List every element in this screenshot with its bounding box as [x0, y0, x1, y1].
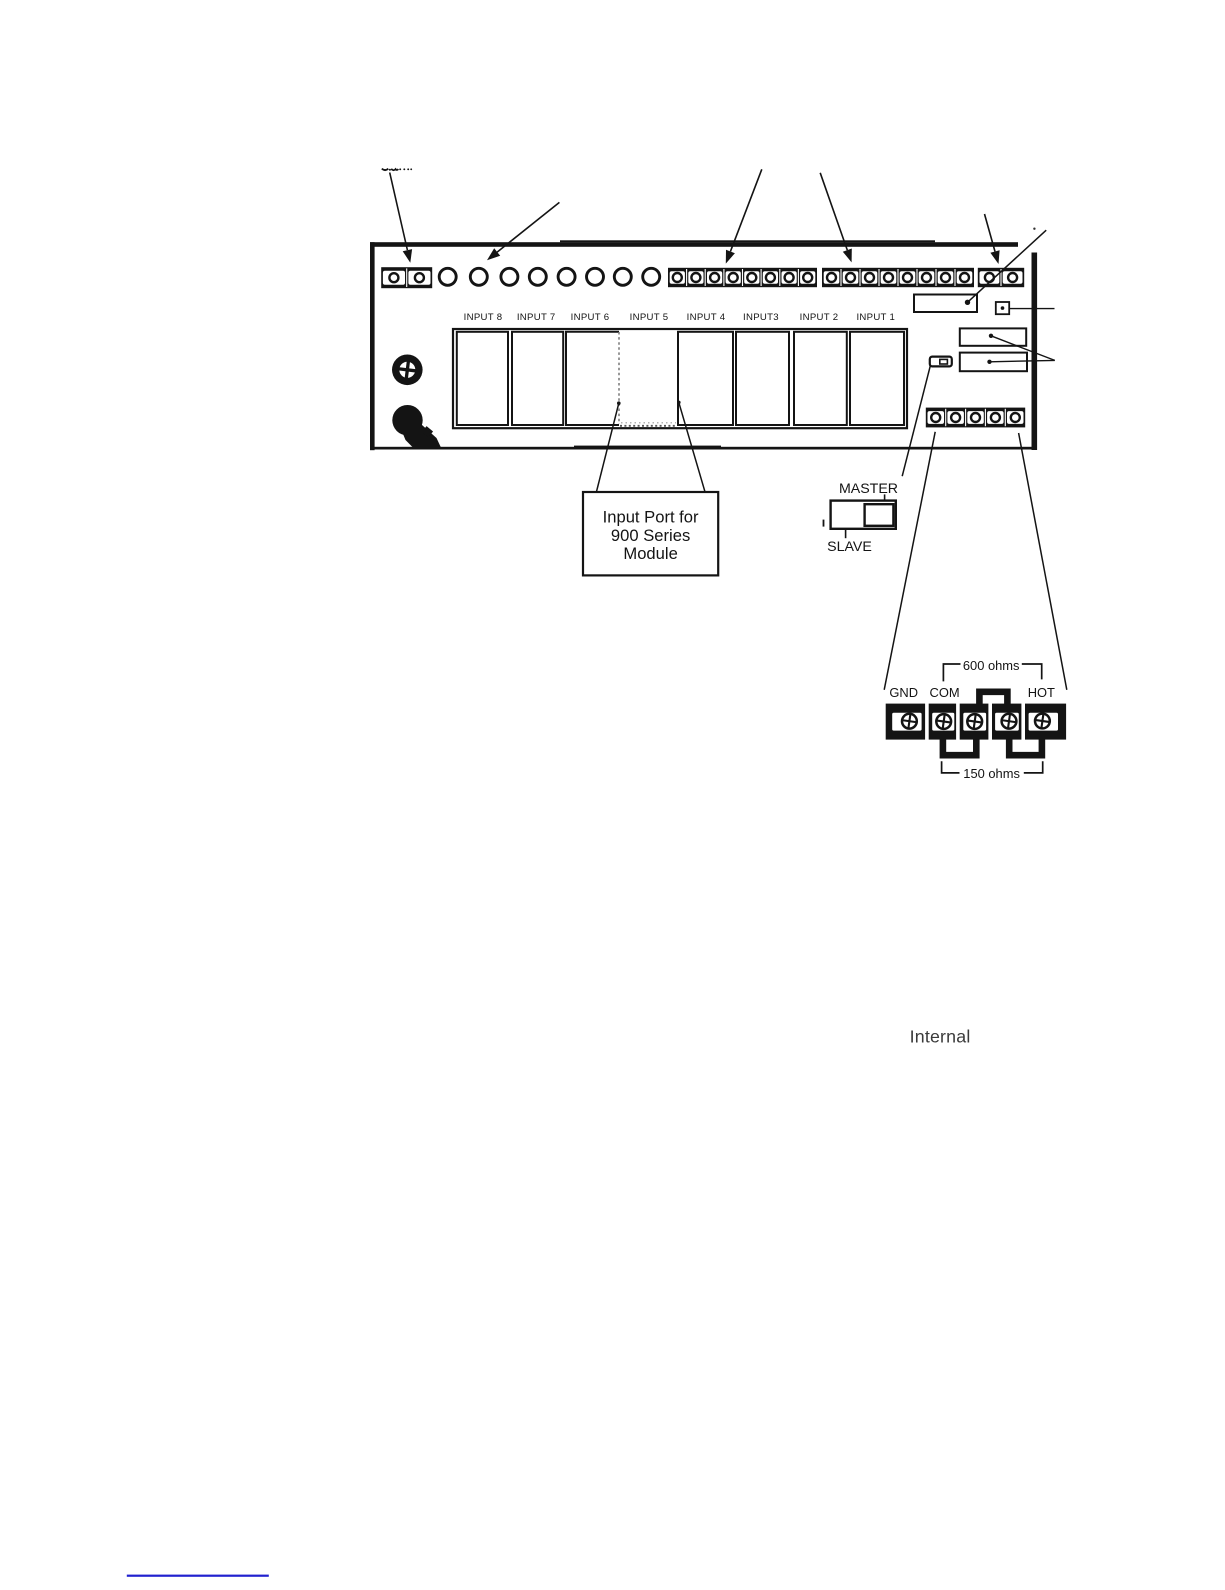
svg-text:600 ohms: 600 ohms — [963, 658, 1020, 673]
svg-text:900 Series: 900 Series — [611, 526, 690, 545]
svg-text:INPUT 1: INPUT 1 — [856, 312, 895, 323]
svg-text:INPUT 7: INPUT 7 — [517, 312, 556, 323]
svg-text:Input Port for: Input Port for — [603, 508, 699, 527]
svg-text:COM: COM — [930, 685, 960, 700]
svg-text:INPUT 2: INPUT 2 — [800, 312, 839, 323]
svg-text:INPUT3: INPUT3 — [743, 312, 779, 323]
svg-text:INPUT 5: INPUT 5 — [630, 312, 669, 323]
svg-text:SLAVE: SLAVE — [827, 539, 872, 555]
svg-text:150 ohms: 150 ohms — [963, 766, 1020, 781]
svg-text:Module: Module — [623, 544, 677, 563]
svg-text:Internal: Internal — [910, 1027, 971, 1047]
svg-text:INPUT 6: INPUT 6 — [571, 312, 610, 323]
svg-text:INPUT 4: INPUT 4 — [687, 312, 726, 323]
svg-text:GND: GND — [889, 685, 918, 700]
svg-text:INPUT 8: INPUT 8 — [464, 312, 503, 323]
svg-text:HOT: HOT — [1028, 685, 1055, 700]
svg-text:MASTER: MASTER — [839, 481, 898, 497]
